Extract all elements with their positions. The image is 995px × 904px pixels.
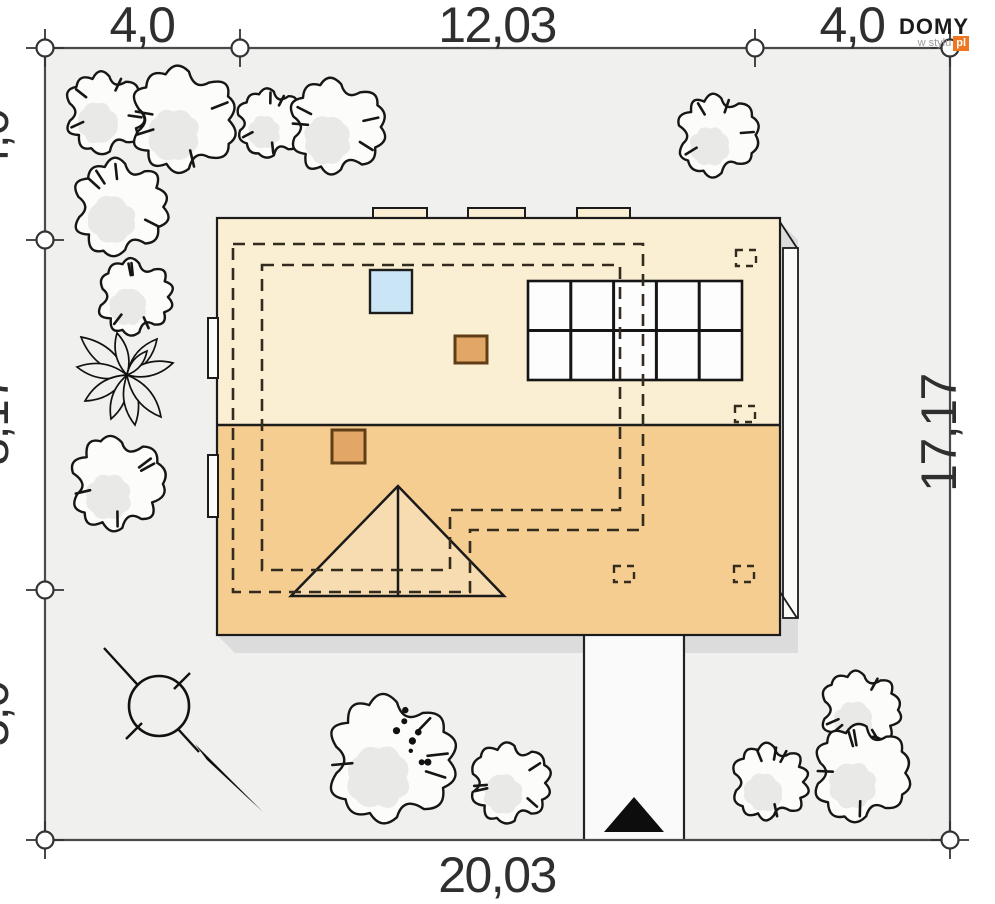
site-logo: DOMY w stylu pl xyxy=(899,16,969,51)
house-roof xyxy=(208,208,798,635)
dim-left-top: 4,0 xyxy=(0,109,19,174)
dim-top-left: 4,0 xyxy=(109,0,174,53)
dim-top-right: 4,0 xyxy=(819,0,884,53)
wall-window-icon xyxy=(208,318,218,378)
driveway xyxy=(584,635,684,841)
dim-bottom-total: 20,03 xyxy=(438,847,556,903)
tree-icon xyxy=(816,724,910,822)
tree-icon xyxy=(75,158,168,256)
tree-icon xyxy=(291,78,385,175)
site-plan-canvas: 4,0 12,03 4,0 4,0 8,17 5,0 17,17 20,03 D… xyxy=(0,0,995,904)
skylight-icon xyxy=(370,270,412,313)
chimney-icon xyxy=(455,336,487,363)
gable-edge xyxy=(780,222,798,618)
logo-subtitle: w stylu xyxy=(918,38,952,49)
chimney-icon xyxy=(332,430,365,463)
dim-top-middle: 12,03 xyxy=(438,0,556,53)
tree-icon xyxy=(472,742,551,823)
logo-title: DOMY xyxy=(899,16,969,38)
site-plan-drawing: 4,0 12,03 4,0 4,0 8,17 5,0 17,17 20,03 xyxy=(0,0,995,904)
tree-icon xyxy=(134,66,236,173)
logo-badge: pl xyxy=(953,36,969,51)
wall-window-icon xyxy=(208,455,218,517)
solar-panel-grid xyxy=(528,281,742,380)
tree-icon xyxy=(331,694,456,823)
tree-icon xyxy=(99,258,173,336)
dim-right-total: 17,17 xyxy=(911,374,967,492)
dim-left-bottom: 5,0 xyxy=(0,681,19,746)
dim-left-middle: 8,17 xyxy=(0,374,19,465)
tree-icon xyxy=(733,743,808,821)
tree-icon xyxy=(72,436,166,531)
